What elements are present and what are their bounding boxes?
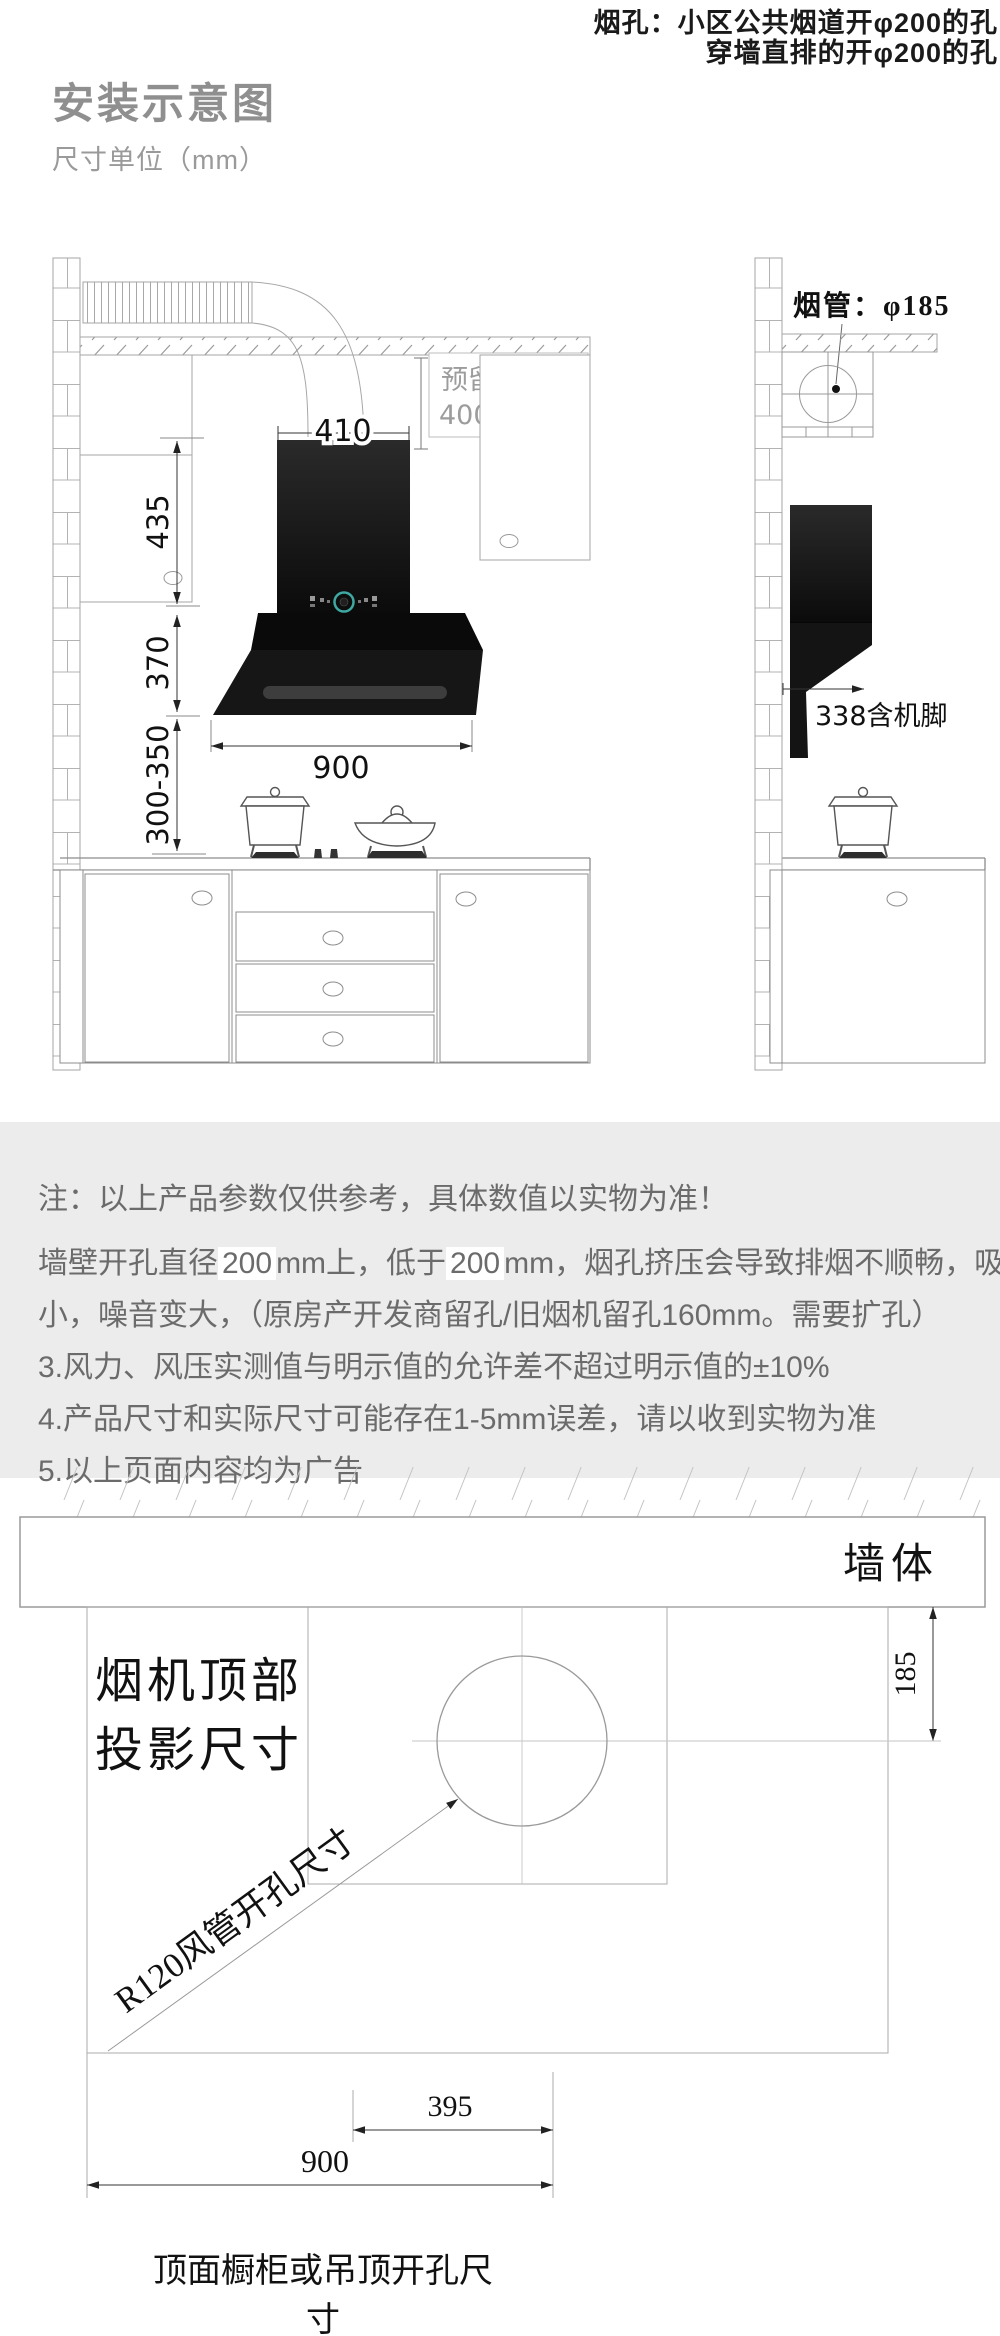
hood-body <box>213 613 483 715</box>
centerlines <box>412 1607 652 1884</box>
highlight-200: 200 <box>218 1247 276 1280</box>
wok-on-stove <box>355 806 435 858</box>
dim-900-projection-text: 900 <box>301 2143 349 2179</box>
dim-900-front-text: 900 <box>312 751 369 786</box>
wall-label: 墙体 <box>843 1542 939 1588</box>
dim-900-front: 900 <box>211 720 472 786</box>
note-line-2: 墙壁开孔直径200mm上，低于200mm，烟孔挤压会导致排烟不顺畅，吸力变 <box>38 1238 970 1290</box>
duct-pipe-leader <box>836 324 842 384</box>
highlight-200: 200 <box>446 1247 504 1280</box>
page-title: 安装示意图 <box>52 70 277 131</box>
countertop <box>53 858 985 870</box>
upper-cabinet-right <box>480 355 590 560</box>
note-line-3: 小，噪音变大，（原房产开发商留孔/旧烟机留孔160mm。需要扩孔） <box>38 1290 970 1342</box>
smoke-hole-note: 烟孔：小区公共烟道开φ200的孔 穿墙直排的开φ200的孔 <box>594 8 998 68</box>
smoke-hole-note-line2: 穿墙直排的开φ200的孔 <box>594 38 998 68</box>
dim-300-350-text: 300-350 <box>141 724 175 845</box>
unit-subtitle: 尺寸单位（mm） <box>52 138 267 177</box>
dim-395: 395 <box>353 2072 553 2198</box>
hood-chimney <box>277 440 410 613</box>
duct-hole-label: R120风管开孔尺寸 <box>108 1821 362 2021</box>
base-cabinet-side <box>770 870 985 1063</box>
opening-square <box>308 1607 667 1884</box>
dim-395-text: 395 <box>428 2090 473 2123</box>
dim-185: 185 <box>652 1607 941 1741</box>
dim-185-text: 185 <box>889 1652 922 1697</box>
pot-on-stove <box>241 788 309 859</box>
projection-label-line1: 烟机顶部 <box>95 1655 303 1708</box>
stove-igniters <box>314 849 338 858</box>
installation-diagram-page: 烟孔：小区公共烟道开φ200的孔 穿墙直排的开φ200的孔 安装示意图 尺寸单位… <box>0 0 1000 2336</box>
dim-338-text: 338含机脚 <box>815 701 948 732</box>
dim-435-text: 435 <box>141 494 175 549</box>
pot-on-stove-side <box>829 788 897 859</box>
duct-hole-leader <box>108 1799 458 2051</box>
wall-band <box>20 1517 985 1607</box>
duct-pipe-leader-dot <box>832 385 840 393</box>
notes-section: 注：以上产品参数仅供参考，具体数值以实物为准！ 墙壁开孔直径200mm上，低于2… <box>0 1122 1000 1478</box>
drawing-caption: 顶面橱柜或吊顶开孔尺寸 <box>138 2243 508 2336</box>
hood-handle-slot <box>263 686 447 699</box>
upper-cabinet-left <box>80 355 192 602</box>
ceiling-side <box>782 334 937 352</box>
projection-label-line2: 投影尺寸 <box>95 1724 303 1777</box>
dim-900-projection: 900 <box>87 2053 553 2198</box>
base-cabinet-front <box>60 870 590 1063</box>
duct-housing-side <box>782 352 873 437</box>
horizontal-duct <box>83 282 252 323</box>
note-line-4: 3.风力、风压实测值与明示值的允许差不超过明示值的±10% <box>38 1342 970 1394</box>
elevation-drawing: 预留高度 400MM 410 <box>0 250 1000 1080</box>
projection-drawing: 墙体 烟机顶部 投影尺寸 R120风管开孔尺寸 185 395 900 <box>0 1460 1000 2240</box>
ceiling-front <box>80 337 590 355</box>
smoke-hole-note-line1: 烟孔：小区公共烟道开φ200的孔 <box>594 8 998 38</box>
note-line-5: 4.产品尺寸和实际尺寸可能存在1-5mm误差，请以收到实物为准 <box>38 1394 970 1446</box>
duct-pipe-label: 烟管：φ185 <box>793 289 950 322</box>
wall-hatch <box>35 1467 988 1517</box>
note-line-1: 注：以上产品参数仅供参考，具体数值以实物为准！ <box>38 1174 970 1226</box>
dim-410-text: 410 <box>314 414 371 449</box>
dim-370-text: 370 <box>141 635 175 690</box>
